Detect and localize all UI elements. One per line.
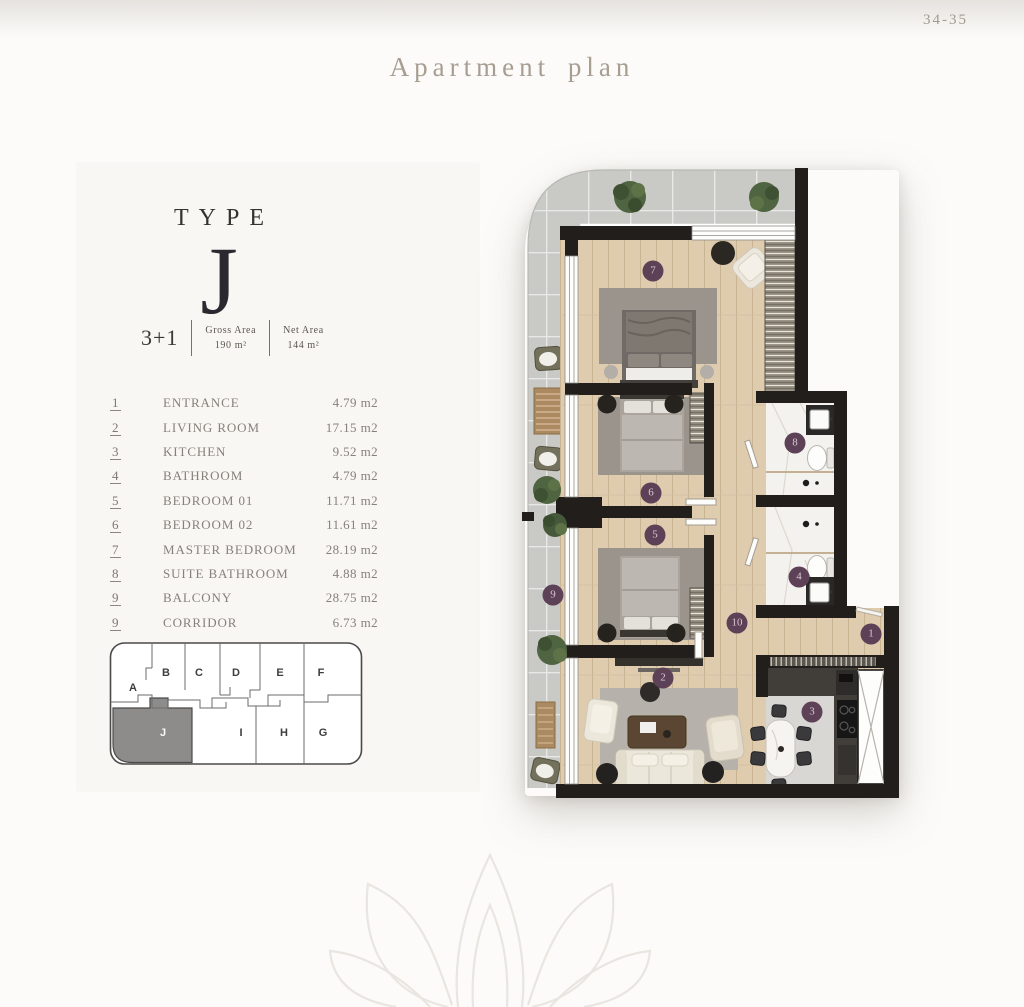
tv-console [615, 658, 703, 666]
pouf [596, 763, 618, 785]
room-number-marker: 5 [645, 525, 666, 546]
kitchen-shelf [770, 657, 876, 666]
nightstand [667, 624, 686, 643]
armchair [583, 698, 619, 744]
room-number-marker: 7 [643, 261, 664, 282]
top-window [692, 226, 795, 240]
bedroom01-sliding-door [686, 519, 716, 525]
armchair [705, 714, 745, 762]
room-number-marker: 4 [789, 567, 810, 588]
nightstand [598, 624, 617, 643]
room-number-marker: 1 [861, 624, 882, 645]
master-wardrobe [765, 235, 795, 393]
nightstand [598, 395, 617, 414]
watermark-flower [330, 855, 650, 1007]
bathroom [766, 507, 834, 608]
balcony-chair [530, 757, 561, 785]
nightstand [665, 395, 684, 414]
room-number-marker: 8 [785, 433, 806, 454]
room-number-marker: 9 [543, 585, 564, 606]
balcony-chair [534, 346, 563, 371]
coffee-table [628, 716, 686, 748]
round-side-table [711, 241, 735, 265]
balcony-chair [534, 446, 563, 471]
apartment-floor-plan: 76584910123 [0, 0, 1024, 1007]
shaft-void [858, 670, 884, 784]
room-number-marker: 2 [653, 668, 674, 689]
kitchen [750, 666, 884, 791]
balcony-bench [536, 702, 555, 748]
bedroom01-door [695, 632, 702, 658]
pouf [702, 761, 724, 783]
bedroom02-sliding-door [686, 499, 716, 505]
room-number-marker: 10 [727, 613, 748, 634]
room-number-marker: 3 [802, 702, 823, 723]
room-number-marker: 6 [641, 483, 662, 504]
floor-plan-drawing [0, 0, 1024, 1007]
